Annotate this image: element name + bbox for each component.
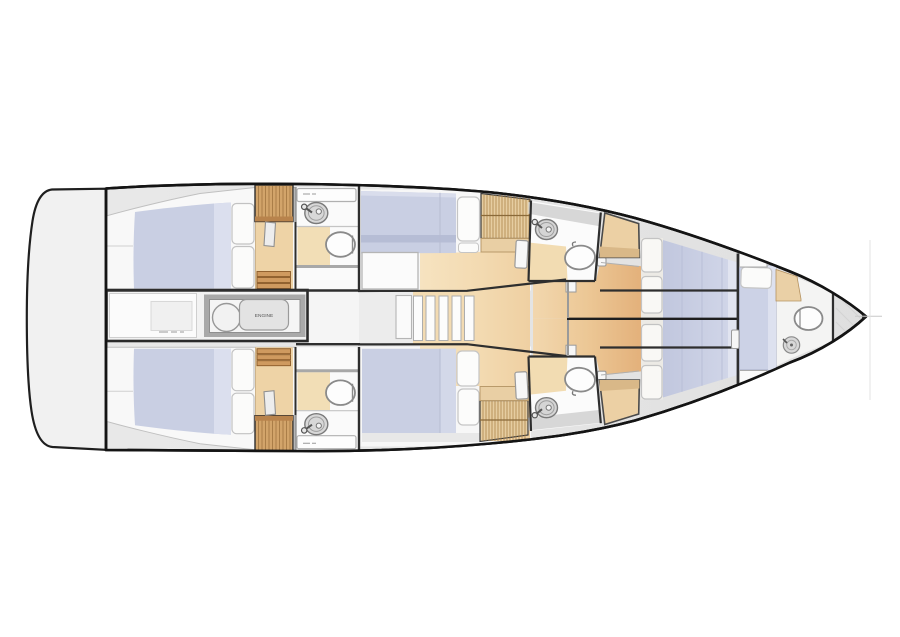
svg-text:ENGINE: ENGINE — [255, 313, 273, 319]
